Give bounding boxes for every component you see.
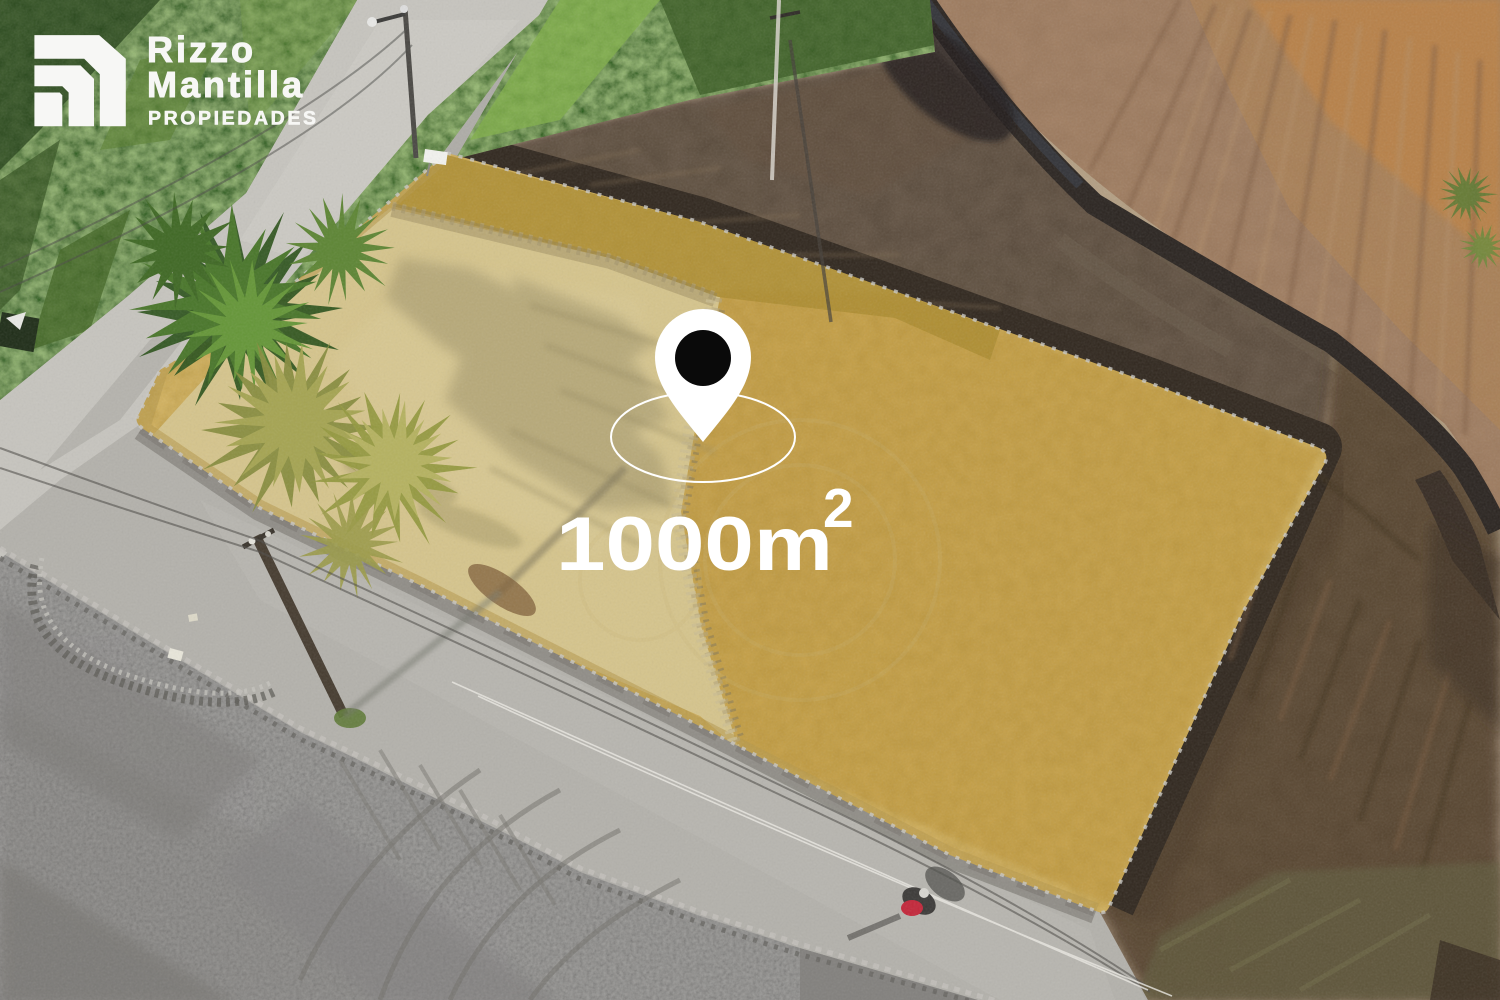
svg-text:PROPIEDADES: PROPIEDADES	[148, 108, 319, 130]
svg-text:Mantilla: Mantilla	[147, 64, 305, 105]
svg-text:2: 2	[823, 477, 854, 539]
svg-text:1000m: 1000m	[556, 502, 833, 587]
